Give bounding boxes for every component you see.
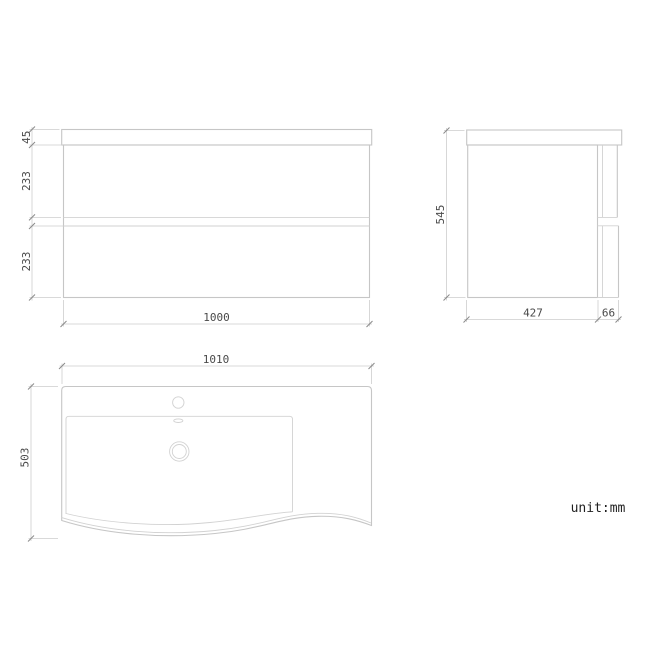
dim-front-upper-drawer: 233 [20, 171, 33, 191]
front-countertop [62, 130, 372, 146]
faucet-hole [173, 397, 184, 408]
technical-drawing: 45 233 233 1000 [0, 0, 650, 650]
top-basin-outline [66, 416, 293, 514]
dim-top-depth: 503 [19, 448, 32, 468]
dim-front-lower-drawer: 233 [20, 252, 33, 272]
front-cabinet-body [64, 145, 370, 298]
overflow-slot [174, 419, 183, 423]
unit-label: unit:mm [571, 501, 626, 516]
dim-front-width: 1000 [203, 311, 230, 324]
top-basin-bottom-curve [66, 512, 293, 525]
side-bottom-dimensions: 427 66 [464, 300, 622, 323]
side-cabinet-body [468, 145, 598, 298]
front-view: 45 233 233 1000 [20, 127, 373, 328]
drawing-canvas: 45 233 233 1000 [0, 0, 650, 650]
front-left-dimensions: 45 233 233 [20, 127, 64, 301]
top-depth-dimension: 503 [19, 384, 59, 542]
side-countertop [467, 130, 622, 145]
dim-side-height: 545 [434, 205, 447, 225]
top-width-dimension: 1010 [59, 353, 375, 384]
side-view: 545 427 66 [434, 128, 622, 323]
dim-front-top-thickness: 45 [20, 131, 33, 144]
top-view: 1010 503 [19, 353, 375, 542]
dim-side-front-overhang: 66 [602, 307, 615, 320]
dim-top-width: 1010 [203, 353, 230, 366]
dim-side-body-depth: 427 [523, 307, 543, 320]
front-bottom-dimension: 1000 [61, 300, 373, 327]
side-height-dimension: 545 [434, 128, 466, 301]
drain-inner-circle [172, 445, 186, 459]
